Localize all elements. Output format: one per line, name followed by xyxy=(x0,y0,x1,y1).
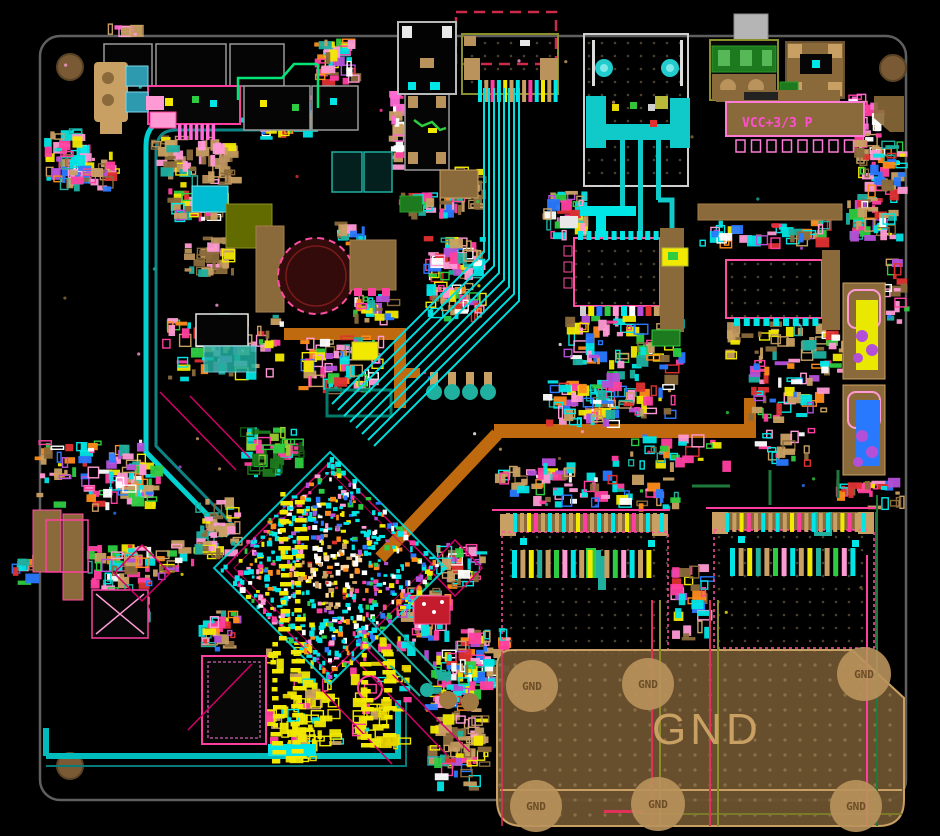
red-component[interactable] xyxy=(414,596,450,624)
usb-connector[interactable] xyxy=(398,22,456,94)
cyan-component[interactable] xyxy=(192,186,228,212)
svg-text:GND: GND xyxy=(846,800,866,813)
tan-pad[interactable] xyxy=(461,693,479,711)
gnd-via[interactable]: GND xyxy=(622,658,674,710)
svg-text:GND: GND xyxy=(522,680,542,693)
inductor-yellow[interactable] xyxy=(843,283,885,379)
tan-pad[interactable] xyxy=(439,691,457,709)
tan-connector[interactable] xyxy=(440,170,478,198)
svg-text:GND: GND xyxy=(854,668,874,681)
inductor-blue[interactable] xyxy=(843,385,885,475)
svg-text:GND: GND xyxy=(638,678,658,691)
net-label-text: VCC+3/3 P xyxy=(742,116,813,131)
gnd-via[interactable]: GND xyxy=(830,780,882,832)
mounting-hole[interactable] xyxy=(880,55,906,81)
mounting-hole[interactable] xyxy=(57,54,83,80)
green-component[interactable] xyxy=(400,196,422,212)
teal-outline-box[interactable] xyxy=(332,152,362,192)
teal-component[interactable] xyxy=(204,346,256,372)
teal-outline-box[interactable] xyxy=(364,152,392,192)
gnd-via[interactable]: GND xyxy=(631,777,685,831)
maroon-cap-footprint[interactable] xyxy=(278,238,354,314)
yellow-component[interactable] xyxy=(352,342,378,360)
memory-module-1[interactable] xyxy=(492,510,670,654)
gnd-via[interactable]: GND xyxy=(510,780,562,832)
teal-pad[interactable] xyxy=(420,683,434,697)
pcb-editor-canvas[interactable]: VCC+3/3 P xyxy=(0,0,940,836)
tan-ic[interactable] xyxy=(350,240,396,296)
svg-text:GND: GND xyxy=(526,800,546,813)
power-jack-connector[interactable] xyxy=(710,14,778,100)
crystal-oscillator[interactable] xyxy=(405,92,449,170)
white-outline-component[interactable] xyxy=(196,314,248,346)
plane-name-text: GND xyxy=(652,705,762,754)
mini-bga[interactable] xyxy=(202,656,266,744)
switch-component[interactable] xyxy=(780,42,844,98)
gnd-via[interactable]: GND xyxy=(837,647,891,701)
svg-text:GND: GND xyxy=(648,798,668,811)
gnd-via[interactable]: GND xyxy=(506,660,558,712)
